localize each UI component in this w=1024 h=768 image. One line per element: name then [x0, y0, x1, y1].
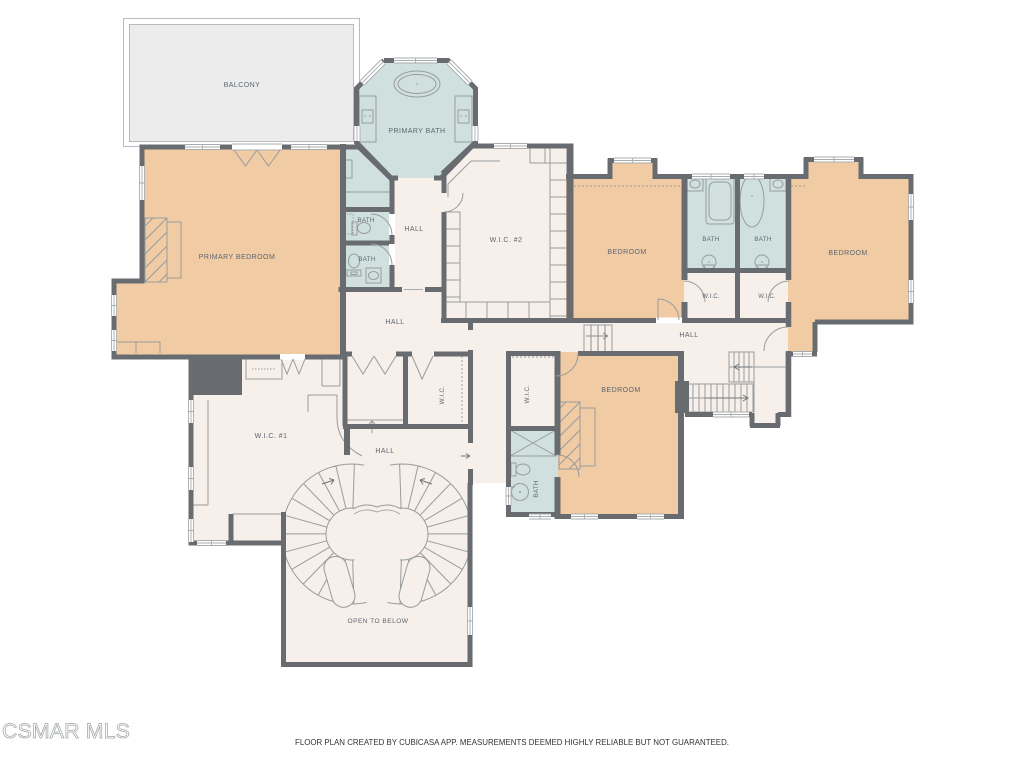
svg-text:W.I.C.: W.I.C.	[702, 294, 720, 300]
svg-text:PRIMARY BEDROOM: PRIMARY BEDROOM	[199, 254, 276, 261]
svg-text:BATH: BATH	[754, 236, 771, 243]
svg-text:BATH: BATH	[358, 256, 375, 263]
svg-text:BEDROOM: BEDROOM	[828, 250, 867, 257]
svg-text:BEDROOM: BEDROOM	[601, 387, 640, 394]
svg-text:BALCONY: BALCONY	[224, 82, 261, 89]
svg-text:HALL: HALL	[385, 319, 404, 326]
svg-text:HALL: HALL	[679, 332, 698, 339]
svg-text:BEDROOM: BEDROOM	[607, 249, 646, 256]
svg-text:BATH: BATH	[702, 236, 719, 243]
svg-text:BATH: BATH	[357, 217, 374, 224]
svg-text:HALL: HALL	[404, 226, 423, 233]
svg-text:PRIMARY BATH: PRIMARY BATH	[388, 128, 445, 135]
svg-text:W.I.C.: W.I.C.	[439, 386, 446, 405]
svg-text:W.I.C.: W.I.C.	[758, 294, 776, 300]
svg-text:BATH: BATH	[533, 480, 540, 497]
svg-text:OPEN TO BELOW: OPEN TO BELOW	[348, 618, 409, 625]
svg-text:W.I.C. #2: W.I.C. #2	[490, 237, 523, 244]
svg-text:HALL: HALL	[375, 448, 394, 455]
svg-text:W.I.C.: W.I.C.	[524, 385, 531, 404]
svg-text:W.I.C. #1: W.I.C. #1	[255, 433, 288, 440]
